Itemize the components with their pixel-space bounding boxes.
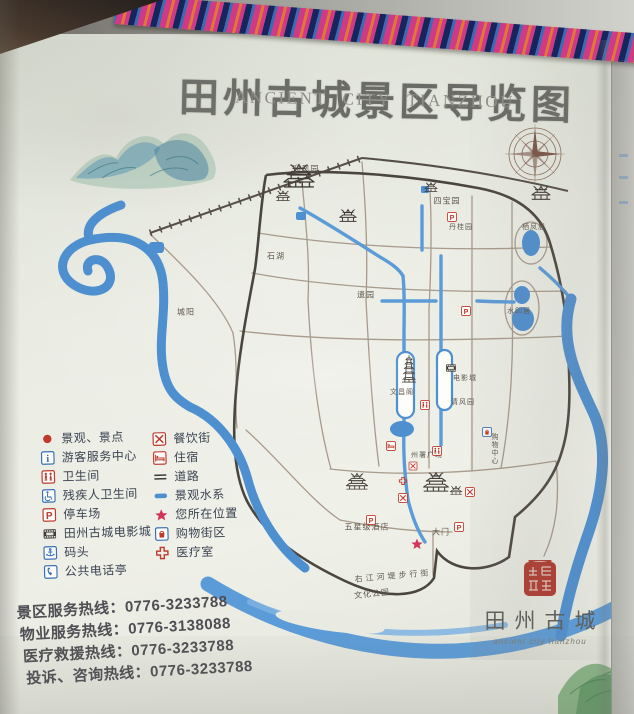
legend-label: 游客服务中心 (62, 447, 137, 466)
legend-item: 餐饮街 (152, 427, 236, 448)
seal-stamp-icon (523, 560, 557, 598)
legend-item: 您所在位置 (154, 503, 238, 524)
legend-item: 医疗室 (155, 541, 239, 562)
cinema-icon (43, 526, 57, 540)
road-icon (153, 469, 167, 483)
legend-item: 购物街区 (155, 522, 239, 543)
star-icon (154, 507, 168, 521)
canals (300, 206, 571, 542)
legend-item: 道路 (153, 465, 237, 486)
legend-left-column: 景观、景点i游客服务中心卫生间残疾人卫生间P停车场田州古城电影城码头公共电话亭 (40, 426, 152, 581)
legend-label: 购物街区 (176, 523, 226, 541)
seal-area: 田州古城 ancient city tianzhou (462, 560, 618, 646)
seal-script: ancient city tianzhou (462, 637, 618, 646)
medical-icon (155, 545, 169, 559)
legend-right-column: 餐饮街住宿道路景观水系您所在位置购物街区医疗室 (152, 427, 239, 562)
legend-item: 景观水系 (154, 484, 238, 505)
legend-label: 公共电话亭 (65, 561, 128, 580)
parking-icon: P (42, 507, 56, 521)
hotlines: 景区服务热线：0776-3233788物业服务热线：0776-3138088医疗… (16, 589, 253, 690)
phone-icon (44, 564, 58, 578)
spot-dot-icon (40, 431, 54, 445)
water-icon (154, 488, 168, 502)
legend-label: 景观、景点 (61, 428, 124, 447)
legend-label: 景观水系 (175, 485, 225, 503)
photo-scene: 田州古城景区导览图 ANCIENT CITY TIANZHOU (0, 0, 634, 714)
legend-item: 公共电话亭 (44, 559, 153, 581)
legend-label: 餐饮街 (173, 429, 211, 447)
dock-icon (43, 545, 57, 559)
lodging-icon (153, 450, 167, 464)
lakes (149, 186, 540, 437)
legend-label: 停车场 (63, 505, 101, 523)
legend-label: 田州古城电影城 (64, 522, 152, 541)
shopping-icon (155, 526, 169, 540)
seal-name: 田州古城 (462, 605, 618, 635)
wall-right-edge (611, 36, 634, 714)
accessible-toilet-icon (42, 488, 56, 502)
toilet-icon (41, 469, 55, 483)
svg-text:i: i (46, 453, 49, 464)
legend-label: 道路 (174, 467, 199, 485)
legend-item: 住宿 (153, 446, 237, 467)
svg-text:P: P (46, 510, 53, 521)
dining-icon (152, 431, 166, 445)
legend-label: 住宿 (174, 448, 199, 466)
legend-label: 您所在位置 (175, 504, 238, 523)
info-icon: i (41, 450, 55, 464)
legend-label: 医疗室 (176, 543, 214, 561)
legend-label: 码头 (64, 543, 89, 561)
legend-label: 残疾人卫生间 (63, 485, 138, 504)
legend-label: 卫生间 (62, 467, 100, 485)
